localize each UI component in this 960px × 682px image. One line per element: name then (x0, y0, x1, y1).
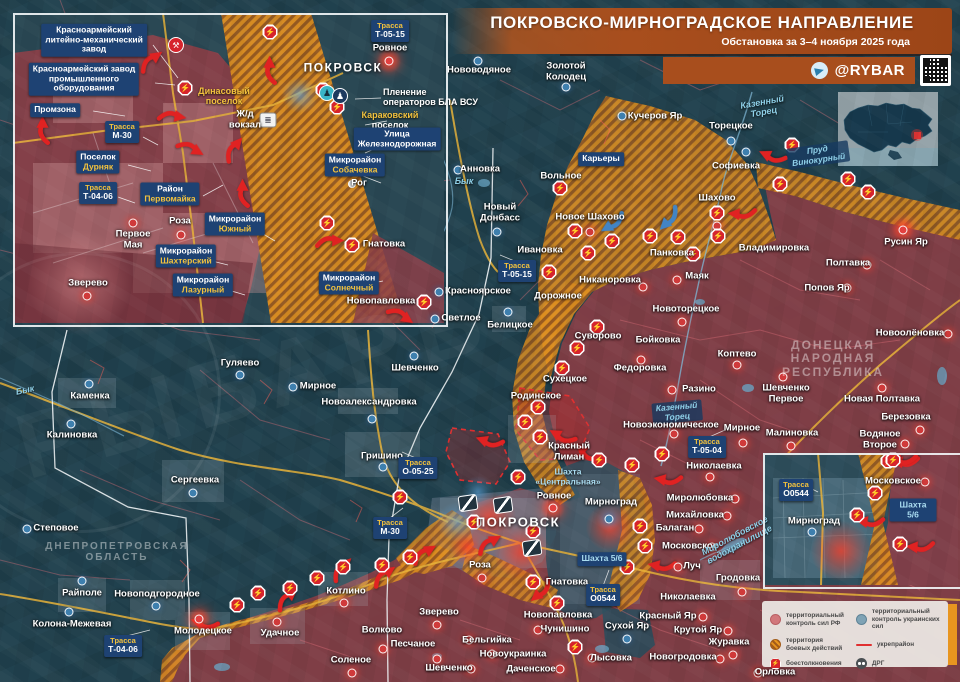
settlement-dot (189, 489, 198, 498)
settlement-dot (410, 352, 419, 361)
settlement-dot (368, 415, 377, 424)
ru-advance-arrow (261, 55, 283, 85)
clash-icon: ⚡ (178, 81, 193, 96)
settlement-dot (465, 636, 474, 645)
captured-weapons-icon (457, 494, 478, 512)
clash-icon: ⚡ (467, 515, 482, 530)
settlement-dot (863, 261, 872, 270)
settlement-dot (623, 635, 632, 644)
map-canvas: РЫБАРЬ ПОКРОВСКО-МИРНОГРАДСКОЕ НАПРАВЛЕН… (0, 0, 960, 682)
legend-label: территориальный контроль сил РФ (786, 612, 848, 627)
settlement-dot (474, 57, 483, 66)
settlement-dot (586, 228, 595, 237)
settlement-dot (478, 574, 487, 583)
legend-ua-icon (856, 614, 867, 625)
settlement-dot (695, 525, 704, 534)
clash-icon: ⚡ (568, 224, 583, 239)
settlement-dot (808, 528, 817, 537)
settlement-dot (708, 543, 717, 552)
clash-icon: ⚡ (553, 181, 568, 196)
captured-weapons-icon (492, 496, 513, 514)
rybar-badge: @RYBAR (663, 57, 915, 84)
map-subtitle: Обстановка за 3–4 ноября 2025 года (452, 36, 952, 48)
clash-icon: ⚡ (526, 524, 541, 539)
legend-accent-strip (948, 604, 957, 665)
settlement-dot (605, 515, 614, 524)
clash-icon: ⚡ (671, 230, 686, 245)
clash-icon: ⚡ (773, 177, 788, 192)
settlement-dot (843, 284, 852, 293)
settlement-dot (556, 665, 565, 674)
legend-drg-icon (856, 658, 867, 669)
header-divider (560, 54, 952, 56)
clash-icon: ⚡ (568, 640, 583, 655)
telegram-icon (811, 62, 828, 79)
clash-icon: ⚡ (868, 486, 883, 501)
clash-icon: ⚡ (841, 172, 856, 187)
legend-label: боестолкновения (786, 660, 842, 668)
settlement-dot (706, 473, 715, 482)
settlement-dot (673, 276, 682, 285)
clash-icon: ⚡ (550, 596, 565, 611)
clash-icon: ⚡ (393, 490, 408, 505)
clash-icon: ⚡ (542, 265, 557, 280)
legend-label: ДРГ (872, 660, 884, 668)
settlement-dot (152, 602, 161, 611)
settlement-dot (716, 655, 725, 664)
clash-icon: ⚡ (511, 470, 526, 485)
captured-weapons-icon (521, 539, 542, 557)
clash-icon: ⚡ (620, 560, 635, 575)
settlement-dot (385, 57, 394, 66)
clash-icon: ⚡ (893, 537, 908, 552)
settlement-dot (742, 148, 751, 157)
settlement-dot (916, 426, 925, 435)
factory-icon: ⚒ (168, 37, 184, 53)
legend-label: укрепрайон (877, 641, 914, 649)
settlement-dot (899, 226, 908, 235)
clash-icon: ⚡ (886, 453, 901, 468)
settlement-dot (467, 665, 476, 674)
clash-icon: ⚡ (686, 247, 701, 262)
train-icon: ≣ (260, 113, 277, 128)
legend-item-clash: ⚡боестолкновения (770, 658, 848, 669)
legend-item-combat: территория боевых действий (770, 637, 848, 652)
settlement-dot (588, 654, 597, 663)
legend-ru-icon (770, 614, 781, 625)
clash-icon: ⚡ (375, 558, 390, 573)
settlement-dot (85, 380, 94, 389)
legend-label: территория боевых действий (786, 637, 848, 652)
legend-item-drg: ДРГ (856, 658, 940, 669)
settlement-dot (379, 645, 388, 654)
clash-icon: ⚡ (336, 560, 351, 575)
settlement-dot (435, 288, 444, 297)
settlement-dot (901, 440, 910, 449)
settlement-dot (699, 613, 708, 622)
clash-icon: ⚡ (581, 246, 596, 261)
settlement-dot (83, 292, 92, 301)
settlement-dot (637, 356, 646, 365)
clash-icon: ⚡ (263, 25, 278, 40)
settlement-dot (878, 384, 887, 393)
clash-icon: ⚡ (403, 550, 418, 565)
settlement-dot (727, 137, 736, 146)
map-title: ПОКРОВСКО-МИРНОГРАДСКОЕ НАПРАВЛЕНИЕ (452, 13, 952, 33)
clash-icon: ⚡ (533, 430, 548, 445)
clash-icon: ⚡ (710, 206, 725, 221)
settlement-dot (738, 588, 747, 597)
settlement-dot (236, 371, 245, 380)
settlement-dot (668, 386, 677, 395)
settlement-dot (340, 599, 349, 608)
settlement-dot (273, 618, 282, 627)
legend-item-line: укрепрайон (856, 637, 940, 652)
settlement-dot (562, 83, 571, 92)
clash-icon: ⚡ (633, 519, 648, 534)
clash-icon: ⚡ (417, 295, 432, 310)
clash-icon: ⚡ (592, 453, 607, 468)
clash-icon: ⚡ (570, 341, 585, 356)
settlement-dot (504, 308, 513, 317)
settlement-dot (23, 525, 32, 534)
legend: территориальный контроль сил РФтерритори… (762, 601, 948, 667)
clash-icon: ⚡ (345, 238, 360, 253)
legend-item-ua: территориальный контроль украинских сил (856, 608, 940, 631)
settlement-dot (733, 361, 742, 370)
ukraine-minimap (838, 92, 938, 166)
settlement-dot (739, 439, 748, 448)
clash-icon: ⚡ (590, 320, 605, 335)
settlement-dot (289, 383, 298, 392)
settlement-dot (787, 442, 796, 451)
sukhoi-yar-pocket (602, 608, 655, 658)
ru-advance-arrow (34, 115, 56, 145)
clash-icon: ⚡ (643, 229, 658, 244)
clash-icon: ⚡ (555, 361, 570, 376)
clash-icon: ⚡ (655, 447, 670, 462)
settlement-dot (779, 373, 788, 382)
ru-advance-arrow (234, 178, 256, 208)
settlement-dot (670, 430, 679, 439)
settlement-dot (379, 463, 388, 472)
settlement-dot (724, 627, 733, 636)
qr-code (920, 55, 951, 86)
settlement-dot (348, 669, 357, 678)
settlement-dot (723, 512, 732, 521)
clash-icon: ⚡ (518, 415, 533, 430)
settlement-dot (618, 112, 627, 121)
settlement-dot (639, 283, 648, 292)
legend-item-ru: территориальный контроль сил РФ (770, 608, 848, 631)
clash-icon: ⚡ (785, 138, 800, 153)
settlement-dot (488, 650, 497, 659)
rybar-handle: @RYBAR (835, 62, 905, 79)
clash-icon: ⚡ (605, 234, 620, 249)
settlement-dot (944, 330, 953, 339)
settlement-dot (729, 651, 738, 660)
settlement-dot (678, 318, 687, 327)
settlement-dot (731, 495, 740, 504)
settlement-dot (549, 504, 558, 513)
clash-icon: ⚡ (861, 185, 876, 200)
ru-advance-arrow (904, 533, 936, 558)
settlement-dot (674, 563, 683, 572)
clash-icon: ⚡ (625, 458, 640, 473)
settlement-dot (348, 180, 356, 188)
header-banner: ПОКРОВСКО-МИРНОГРАДСКОЕ НАПРАВЛЕНИЕ Обст… (452, 8, 952, 54)
settlement-dot (177, 231, 186, 240)
settlement-dot (431, 315, 440, 324)
clash-icon: ⚡ (711, 229, 726, 244)
settlement-dot (78, 577, 87, 586)
legend-line-icon (856, 644, 872, 647)
settlement-dot (493, 228, 502, 237)
clash-icon: ⚡ (850, 508, 865, 523)
settlement-dot (195, 615, 204, 624)
clash-icon: ⚡ (320, 216, 335, 231)
clash-icon: ⚡ (251, 586, 266, 601)
ru-advance-arrow (315, 232, 345, 254)
settlement-dot (921, 478, 930, 487)
clash-icon: ⚡ (526, 575, 541, 590)
clash-icon: ⚡ (230, 598, 245, 613)
settlement-dot (433, 621, 442, 630)
pow-navy-icon: ♟ (332, 88, 348, 104)
clash-icon: ⚡ (283, 581, 298, 596)
settlement-dot (433, 655, 442, 664)
settlement-dot (534, 626, 543, 635)
ru-advance-arrow (726, 200, 758, 225)
settlement-dot (454, 166, 463, 175)
donetsk-marker (914, 132, 921, 139)
legend-clash-icon: ⚡ (770, 658, 781, 669)
clash-icon: ⚡ (531, 400, 546, 415)
settlement-dot (754, 669, 763, 678)
legend-combat-icon (770, 639, 781, 650)
clash-icon: ⚡ (310, 571, 325, 586)
clash-icon: ⚡ (638, 539, 653, 554)
settlement-dot (67, 420, 76, 429)
settlement-dot (65, 608, 74, 617)
legend-label: территориальный контроль украинских сил (872, 608, 940, 631)
settlement-dot (129, 219, 138, 228)
